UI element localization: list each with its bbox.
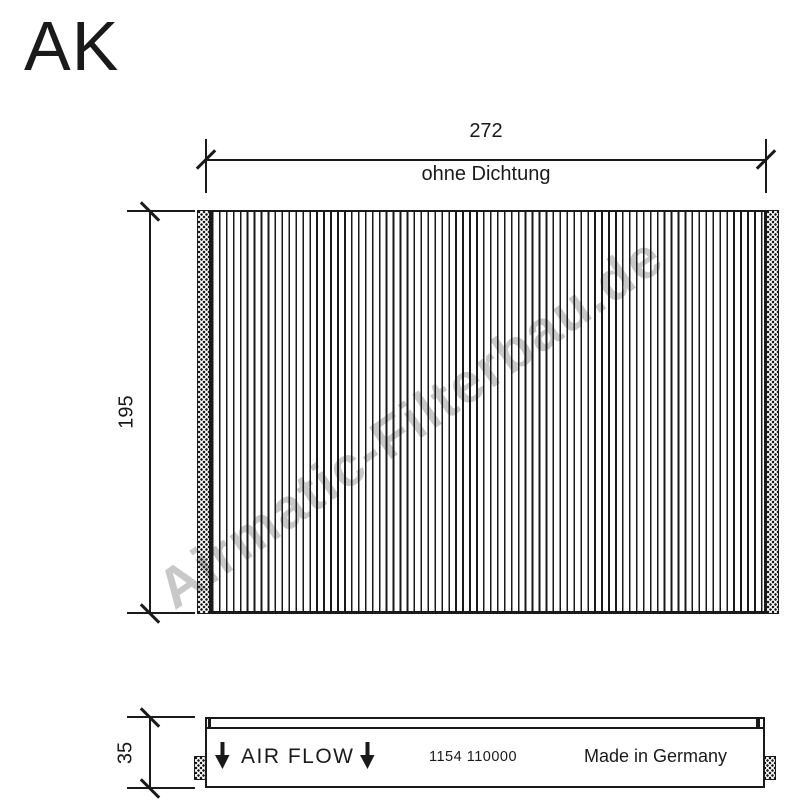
front-view-left-gasket-strip (197, 210, 210, 614)
width-dim-line (206, 159, 766, 161)
depth-dim-value: 35 (115, 742, 138, 764)
height-dim-extension-line-bottom (127, 612, 195, 614)
depth-dim-line (149, 716, 151, 789)
air-flow-down-arrow-icon (215, 742, 230, 769)
air-flow-down-arrow-icon (360, 742, 375, 769)
part-number-label: 1154 110000 (429, 750, 517, 765)
depth-dim-extension-line-top (127, 716, 195, 718)
side-view-top-band-line (207, 727, 763, 729)
depth-dim-extension-line-bottom (127, 787, 195, 789)
width-dim-value: 272 (206, 120, 766, 143)
side-view-body: AIR FLOW 1154 110000 Made in Germany (205, 717, 765, 788)
drawing-code-label: AK (24, 10, 119, 84)
width-dim-note: ohne Dichtung (206, 163, 766, 186)
side-view-left-notch (208, 719, 211, 727)
height-dim-value: 195 (116, 395, 139, 428)
height-dim-line (149, 210, 151, 614)
front-view-right-gasket-strip (766, 210, 779, 614)
technical-drawing-canvas: Airmatic-Filterbau.de AK 272 ohne Dichtu… (0, 0, 800, 808)
front-view-pleat-pack (210, 210, 766, 614)
height-dim-extension-line-top (127, 210, 195, 212)
made-in-germany-label: Made in Germany (584, 747, 727, 765)
air-flow-label: AIR FLOW (241, 746, 355, 767)
side-view-right-notch (756, 719, 760, 727)
